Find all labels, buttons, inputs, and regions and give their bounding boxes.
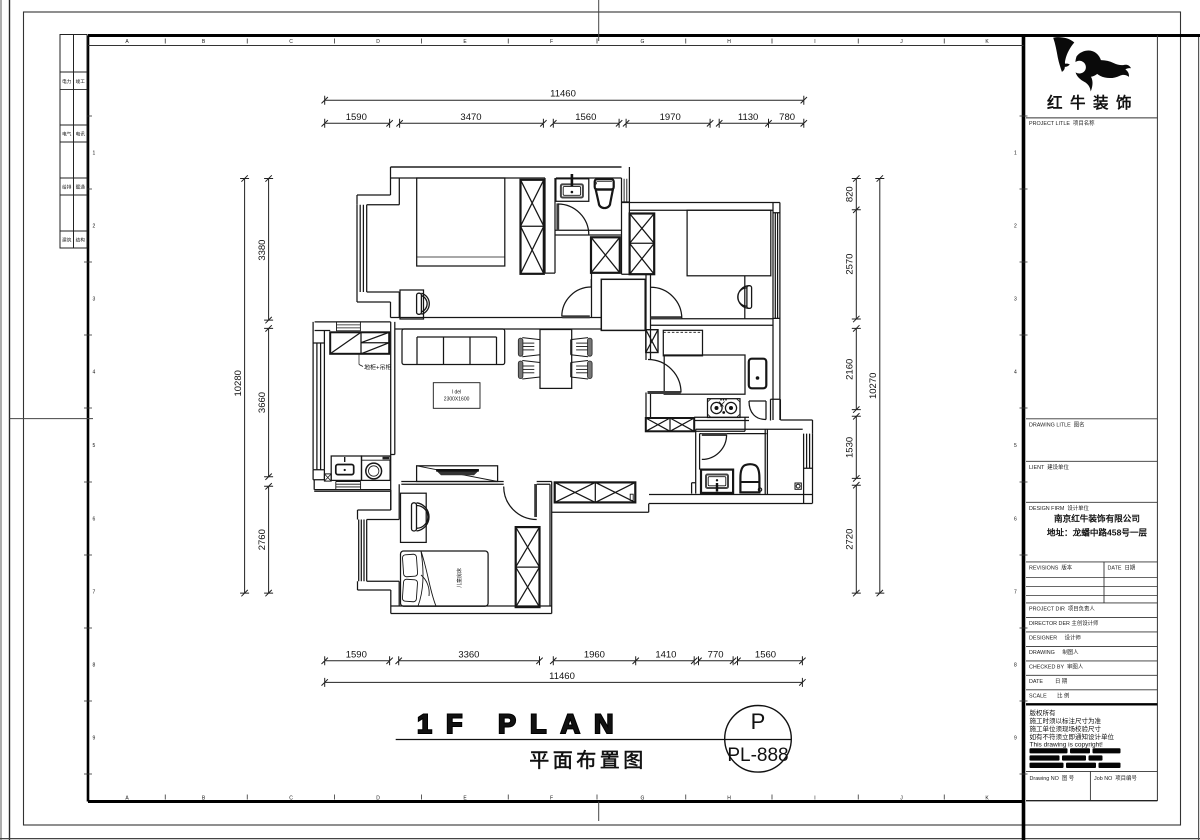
svg-text:G: G <box>641 39 645 45</box>
svg-text:1: 1 <box>1014 151 1017 157</box>
svg-text:770: 770 <box>708 649 724 660</box>
svg-text:11460: 11460 <box>549 671 575 682</box>
svg-text:1410: 1410 <box>655 649 676 660</box>
svg-text:2: 2 <box>93 224 96 230</box>
svg-text:2160: 2160 <box>845 359 856 380</box>
svg-text:1: 1 <box>93 151 96 157</box>
svg-text:11460: 11460 <box>550 89 576 100</box>
svg-text:电气: 电气 <box>62 131 72 137</box>
svg-text:F: F <box>550 39 553 45</box>
svg-text:3660: 3660 <box>257 392 268 413</box>
svg-text:780: 780 <box>779 112 795 123</box>
svg-text:儿童房床: 儿童房床 <box>456 568 463 588</box>
svg-text:PROJECT LITLE 项目名称: PROJECT LITLE 项目名称 <box>1029 119 1095 127</box>
svg-text:2: 2 <box>1014 224 1017 230</box>
svg-text:版权所有: 版权所有 <box>1030 708 1057 717</box>
svg-text:7: 7 <box>93 590 96 596</box>
svg-text:2570: 2570 <box>845 254 856 275</box>
svg-text:1560: 1560 <box>755 649 776 660</box>
svg-text:H: H <box>727 796 731 802</box>
svg-text:5: 5 <box>1014 443 1017 449</box>
svg-text:REVISIONS 版本: REVISIONS 版本 <box>1029 564 1073 572</box>
svg-text:8: 8 <box>1014 663 1017 669</box>
svg-text:3470: 3470 <box>460 112 481 123</box>
svg-text:I: I <box>814 796 815 802</box>
svg-text:建筑: 建筑 <box>62 237 72 244</box>
svg-text:Job NO 项目编号: Job NO 项目编号 <box>1094 774 1137 782</box>
svg-text:SCALE 比 例: SCALE 比 例 <box>1029 691 1069 699</box>
svg-text:3360: 3360 <box>458 649 479 660</box>
svg-text:D: D <box>376 796 380 802</box>
svg-text:电讯: 电讯 <box>76 131 86 138</box>
svg-text:1F PLAN: 1F PLAN <box>417 709 628 739</box>
svg-text:施工时须以标注尺寸为准: 施工时须以标注尺寸为准 <box>1030 716 1102 725</box>
svg-text:LIENT 建设单位: LIENT 建设单位 <box>1029 463 1069 471</box>
svg-text:2760: 2760 <box>257 529 268 550</box>
svg-text:红牛装饰: 红牛装饰 <box>1047 93 1139 112</box>
svg-text:给排: 给排 <box>62 184 72 191</box>
svg-text:DRAWING LITLE 图名: DRAWING LITLE 图名 <box>1029 420 1085 428</box>
svg-text:电力: 电力 <box>62 78 72 85</box>
svg-text:H: H <box>727 39 731 45</box>
svg-text:6: 6 <box>1014 517 1017 523</box>
svg-text:5: 5 <box>93 443 96 449</box>
svg-text:4: 4 <box>1014 370 1017 376</box>
svg-text:如有不符须立即通知设计单位: 如有不符须立即通知设计单位 <box>1030 732 1115 741</box>
svg-text:10270: 10270 <box>868 373 879 399</box>
svg-text:1560: 1560 <box>575 112 596 123</box>
svg-text:3380: 3380 <box>257 240 268 261</box>
svg-text:DESIGN FIRM 设计单位: DESIGN FIRM 设计单位 <box>1029 504 1090 512</box>
svg-text:南京红牛装饰有限公司: 南京红牛装饰有限公司 <box>1054 513 1140 524</box>
svg-text:DATE 日期: DATE 日期 <box>1108 565 1136 572</box>
svg-text:1960: 1960 <box>584 649 605 660</box>
svg-text:竣工: 竣工 <box>76 78 86 85</box>
svg-text:G: G <box>641 796 645 802</box>
svg-text:结构: 结构 <box>76 237 86 244</box>
svg-text:DRAWING 制图人: DRAWING 制图人 <box>1029 648 1079 656</box>
svg-text:D: D <box>376 39 380 45</box>
svg-text:1130: 1130 <box>738 112 758 123</box>
svg-text:地址：龙蟠中路458号一层: 地址：龙蟠中路458号一层 <box>1047 527 1148 538</box>
svg-text:PL-888: PL-888 <box>727 745 788 766</box>
svg-text:6: 6 <box>93 517 96 523</box>
svg-text:DATE 日 期: DATE 日 期 <box>1029 678 1067 685</box>
svg-text:9: 9 <box>1014 736 1017 742</box>
svg-text:7: 7 <box>1014 590 1017 596</box>
svg-text:P: P <box>751 709 766 734</box>
svg-text:1970: 1970 <box>660 112 681 123</box>
svg-text:8: 8 <box>93 663 96 669</box>
svg-text:10280: 10280 <box>233 370 244 396</box>
svg-text:平面布置图: 平面布置图 <box>529 749 647 772</box>
svg-text:暖通: 暖通 <box>76 184 86 191</box>
svg-text:CHECKED BY 审图人: CHECKED BY 审图人 <box>1029 662 1084 670</box>
svg-text:820: 820 <box>845 186 856 202</box>
svg-text:l del: l del <box>452 390 461 396</box>
svg-text:9: 9 <box>93 736 96 742</box>
svg-text:F: F <box>550 796 553 802</box>
svg-text:I: I <box>814 39 815 45</box>
svg-text:3: 3 <box>93 297 96 303</box>
svg-text:4: 4 <box>93 370 96 376</box>
svg-text:3: 3 <box>1014 297 1017 303</box>
svg-text:1590: 1590 <box>346 649 367 660</box>
svg-text:地柜+吊柜: 地柜+吊柜 <box>364 364 392 372</box>
svg-text:1530: 1530 <box>845 437 856 458</box>
svg-text:施工单位须现场校验尺寸: 施工单位须现场校验尺寸 <box>1030 724 1102 733</box>
svg-text:This drawing is copyright!: This drawing is copyright! <box>1030 742 1104 749</box>
svg-text:C: C <box>289 39 293 45</box>
svg-text:2720: 2720 <box>845 529 856 550</box>
svg-text:Drawing NO 图 号: Drawing NO 图 号 <box>1030 774 1075 782</box>
svg-text:C: C <box>289 796 293 802</box>
svg-text:DIRECTOR DER 主创设计师: DIRECTOR DER 主创设计师 <box>1029 619 1099 627</box>
svg-text:1590: 1590 <box>346 112 367 123</box>
svg-text:PROJECT DIR 项目负责人: PROJECT DIR 项目负责人 <box>1029 604 1095 612</box>
svg-text:2300X1600: 2300X1600 <box>444 397 470 403</box>
svg-text:DESIGNER 设计师: DESIGNER 设计师 <box>1029 633 1081 641</box>
